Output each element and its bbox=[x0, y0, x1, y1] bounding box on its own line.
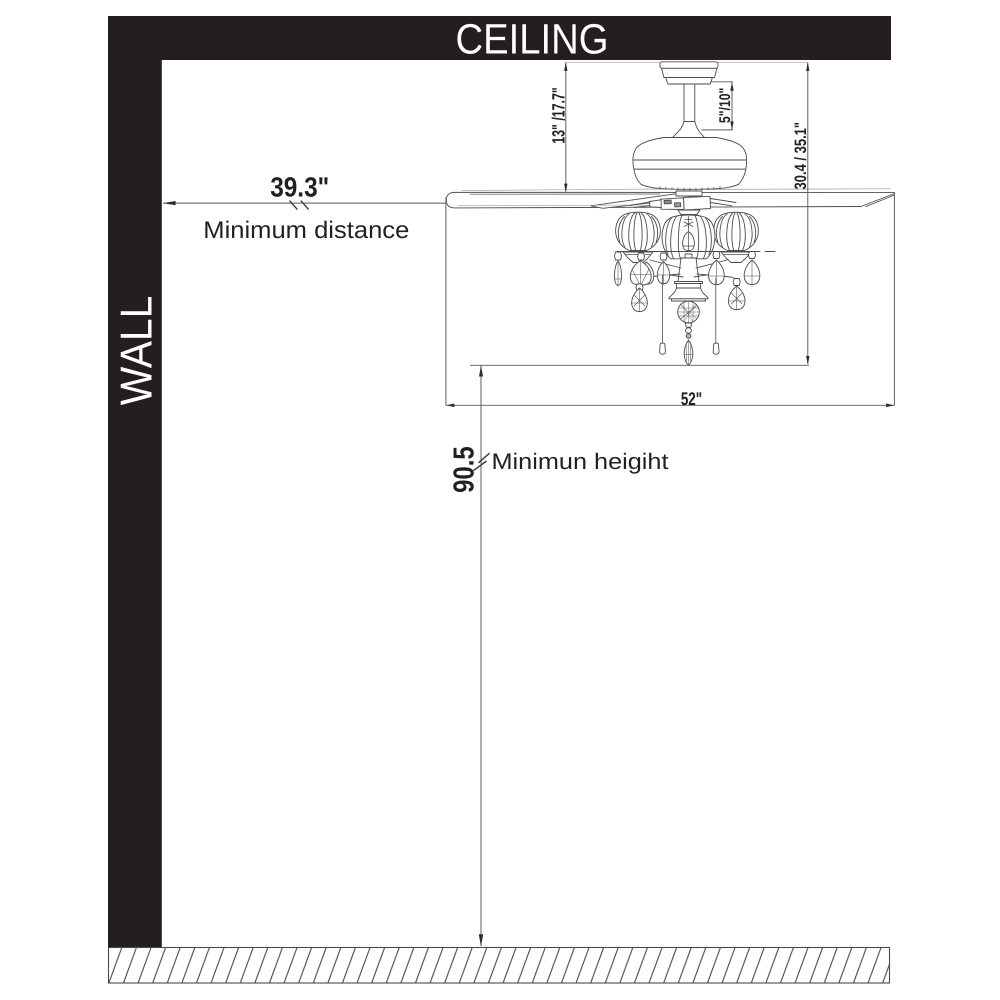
svg-text:52": 52" bbox=[681, 388, 702, 409]
svg-text:Minimun heigiht: Minimun heigiht bbox=[492, 449, 670, 474]
svg-text:90.5: 90.5 bbox=[449, 446, 481, 493]
svg-text:CEILING: CEILING bbox=[456, 17, 609, 64]
svg-text:5"/10": 5"/10" bbox=[717, 88, 734, 123]
svg-text:13" /17.7": 13" /17.7" bbox=[548, 87, 568, 144]
svg-text:39.3": 39.3" bbox=[270, 172, 329, 203]
svg-text:WALL: WALL bbox=[113, 296, 162, 406]
svg-text:30.4 / 35.1": 30.4 / 35.1" bbox=[792, 122, 810, 190]
svg-text:Minimum distance: Minimum distance bbox=[203, 217, 409, 244]
